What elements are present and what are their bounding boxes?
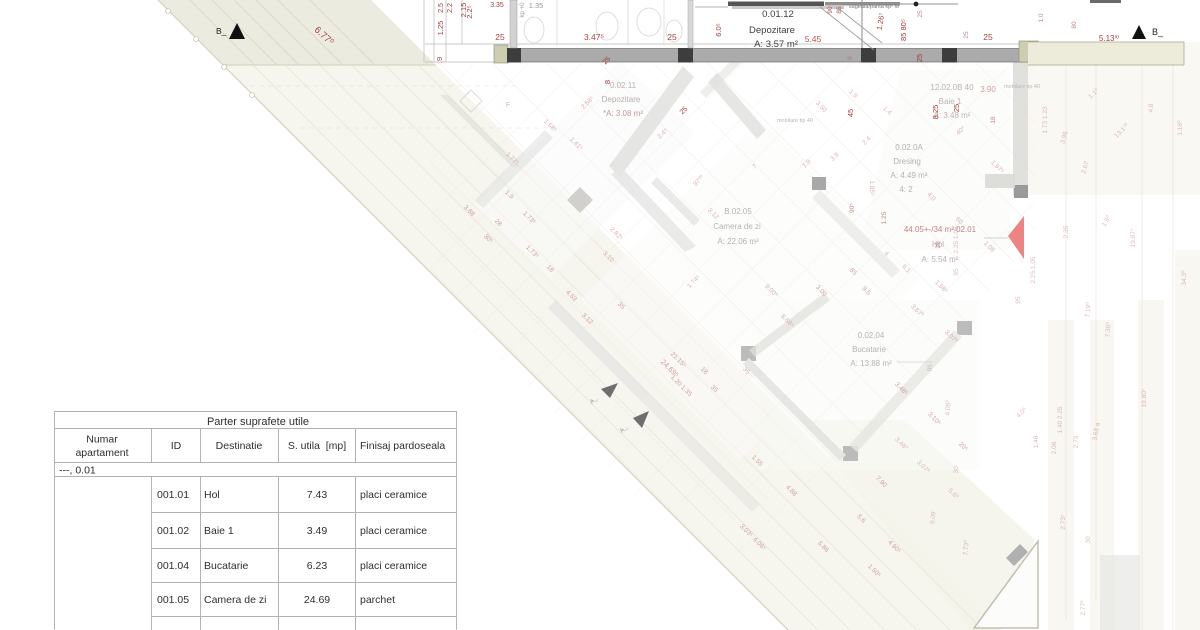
svg-text:1.48: 1.48 xyxy=(1033,435,1040,448)
svg-text:4: 4 xyxy=(882,250,890,258)
svg-text:2.25 1.05: 2.25 1.05 xyxy=(1030,256,1037,283)
svg-text:8.68⁵: 8.68⁵ xyxy=(779,313,795,329)
svg-text:2.4⁵: 2.4⁵ xyxy=(656,127,669,140)
svg-text:3.03⁵: 3.03⁵ xyxy=(738,523,754,539)
svg-text:1.0: 1.0 xyxy=(1038,13,1045,22)
svg-text:19.87⁷: 19.87⁷ xyxy=(1130,228,1137,247)
svg-text:1.1⁰: 1.1⁰ xyxy=(1087,86,1101,100)
svg-text:parchet: parchet xyxy=(360,594,395,606)
svg-text:25: 25 xyxy=(917,10,924,18)
svg-text:18: 18 xyxy=(545,264,555,274)
svg-text:001.01: 001.01 xyxy=(157,489,189,501)
svg-text:1.18⁰: 1.18⁰ xyxy=(1176,120,1184,136)
svg-text:30: 30 xyxy=(1085,536,1092,544)
svg-text:1.9: 1.9 xyxy=(801,158,813,170)
svg-text:9.09: 9.09 xyxy=(929,511,937,525)
svg-text:9.00⁵: 9.00⁵ xyxy=(763,283,779,299)
svg-text:5.86: 5.86 xyxy=(816,540,830,554)
svg-text:1.40 2.25: 1.40 2.25 xyxy=(1057,406,1064,433)
svg-text:7.73⁰: 7.73⁰ xyxy=(961,539,970,555)
svg-text:1.85⁵: 1.85⁵ xyxy=(868,180,875,196)
svg-text:2.4: 2.4 xyxy=(861,135,873,147)
svg-text:4.0: 4.0 xyxy=(925,191,937,203)
svg-text:18: 18 xyxy=(699,366,709,376)
svg-text:28: 28 xyxy=(493,218,503,228)
svg-text:4.8: 4.8 xyxy=(1148,103,1155,112)
svg-text:placi ceramice: placi ceramice xyxy=(360,560,427,572)
svg-text:1.9: 1.9 xyxy=(847,88,859,100)
svg-text:7.43: 7.43 xyxy=(307,489,328,501)
svg-text:80: 80 xyxy=(1071,21,1078,29)
svg-text:1.08: 1.08 xyxy=(982,240,996,254)
svg-text:4.90⁵: 4.90⁵ xyxy=(886,539,902,555)
svg-text:1.9⁰: 1.9⁰ xyxy=(1100,214,1113,228)
svg-text:Finisaj pardoseala: Finisaj pardoseala xyxy=(360,440,445,452)
svg-text:1.68⁵: 1.68⁵ xyxy=(542,118,558,134)
svg-text:Camera de zi: Camera de zi xyxy=(204,594,266,606)
svg-text:apartament: apartament xyxy=(75,447,128,459)
svg-text:5.6⁰: 5.6⁰ xyxy=(946,487,960,501)
svg-text:3.90: 3.90 xyxy=(980,85,996,94)
svg-text:Destinatie: Destinatie xyxy=(216,440,263,452)
svg-text:001.05: 001.05 xyxy=(157,594,189,606)
svg-text:2.77⁰: 2.77⁰ xyxy=(1079,600,1087,616)
svg-text:2.35: 2.35 xyxy=(1063,225,1070,238)
svg-text:Numar: Numar xyxy=(86,434,118,446)
svg-text:19.80⁷: 19.80⁷ xyxy=(1141,388,1148,407)
svg-text:5.6: 5.6 xyxy=(855,513,867,525)
svg-text:Hol: Hol xyxy=(204,489,220,501)
svg-text:7.19⁰: 7.19⁰ xyxy=(1083,301,1092,317)
svg-text:4.0⁵: 4.0⁵ xyxy=(1015,406,1028,419)
svg-text:1.41⁵: 1.41⁵ xyxy=(568,136,584,152)
svg-text:3.67⁰: 3.67⁰ xyxy=(909,302,926,319)
svg-text:2.73: 2.73 xyxy=(1073,435,1080,448)
svg-text:1.73⁵: 1.73⁵ xyxy=(521,210,537,226)
svg-text:95: 95 xyxy=(953,268,960,276)
svg-text:6.23: 6.23 xyxy=(307,560,328,572)
svg-text:35: 35 xyxy=(616,301,626,311)
svg-text:13.1⁷⁰: 13.1⁷⁰ xyxy=(1113,121,1131,139)
svg-text:2.73⁵: 2.73⁵ xyxy=(1060,514,1067,530)
svg-text:Parter suprafete utile: Parter suprafete utile xyxy=(207,416,309,428)
svg-text:3.07⁰: 3.07⁰ xyxy=(915,458,932,475)
svg-text:90⁵: 90⁵ xyxy=(849,203,856,213)
svg-text:2.58⁵: 2.58⁵ xyxy=(580,95,596,111)
svg-text:35: 35 xyxy=(709,384,719,394)
svg-text:25: 25 xyxy=(963,31,970,39)
svg-text:18: 18 xyxy=(990,116,997,124)
svg-text:3.00: 3.00 xyxy=(814,284,828,298)
svg-text:2.25 1.05: 2.25 1.05 xyxy=(953,226,960,253)
svg-text:1.55: 1.55 xyxy=(750,454,764,468)
svg-text:24.69: 24.69 xyxy=(304,594,330,606)
svg-text:2.67: 2.67 xyxy=(1081,160,1091,174)
svg-text:3.12: 3.12 xyxy=(706,207,720,221)
svg-text:4.06⁵: 4.06⁵ xyxy=(751,536,767,552)
svg-text:97⁰⁰: 97⁰⁰ xyxy=(691,173,706,188)
svg-text:25: 25 xyxy=(935,241,942,249)
svg-text:001.02: 001.02 xyxy=(157,525,189,537)
svg-text:95: 95 xyxy=(1015,296,1022,304)
svg-text:3.46⁰: 3.46⁰ xyxy=(893,435,910,452)
svg-text:ID: ID xyxy=(171,440,182,452)
svg-text:3.48⁵: 3.48⁵ xyxy=(893,381,909,397)
svg-text:4.53: 4.53 xyxy=(564,289,578,303)
svg-text:placi ceramice: placi ceramice xyxy=(360,525,427,537)
svg-text:30⁵: 30⁵ xyxy=(482,233,494,245)
svg-text:7: 7 xyxy=(751,163,759,171)
svg-text:1.20 1.35: 1.20 1.35 xyxy=(669,374,693,398)
svg-text:A_: A_ xyxy=(619,425,629,435)
svg-text:Bucatarie: Bucatarie xyxy=(204,560,249,572)
svg-text:30: 30 xyxy=(953,466,961,474)
svg-text:1.74⁵: 1.74⁵ xyxy=(686,274,702,290)
svg-text:1.73 1.23: 1.73 1.23 xyxy=(1042,106,1049,133)
svg-text:34.3⁰: 34.3⁰ xyxy=(1180,270,1188,286)
svg-text:3.68 a: 3.68 a xyxy=(1092,422,1102,441)
svg-text:20⁵: 20⁵ xyxy=(957,441,969,453)
svg-text:S. utila [mp]: S. utila [mp] xyxy=(288,440,346,452)
svg-text:2.06: 2.06 xyxy=(1051,441,1058,454)
svg-text:7.36⁰: 7.36⁰ xyxy=(1103,321,1112,337)
svg-text:6.1: 6.1 xyxy=(900,263,912,275)
svg-text:placi ceramice: placi ceramice xyxy=(360,489,427,501)
svg-text:60: 60 xyxy=(954,216,964,226)
svg-text:3.8: 3.8 xyxy=(829,151,841,163)
svg-text:1.25: 1.25 xyxy=(881,211,888,224)
svg-text:3.12: 3.12 xyxy=(580,312,594,326)
svg-text:Baie 1: Baie 1 xyxy=(204,525,234,537)
svg-text:001.04: 001.04 xyxy=(157,560,189,572)
svg-text:40⁵: 40⁵ xyxy=(955,125,967,137)
svg-text:95: 95 xyxy=(927,364,935,372)
svg-text:1.97⁵: 1.97⁵ xyxy=(989,159,1005,175)
svg-text:1.50⁵: 1.50⁵ xyxy=(866,563,882,579)
svg-text:2.82⁵: 2.82⁵ xyxy=(608,226,624,242)
svg-text:3.07⁰: 3.07⁰ xyxy=(943,328,960,345)
svg-text:1.98⁵: 1.98⁵ xyxy=(933,279,949,295)
svg-text:1.9: 1.9 xyxy=(503,189,515,201)
svg-text:3.10⁵: 3.10⁵ xyxy=(926,411,942,427)
svg-text:8: 8 xyxy=(847,56,854,60)
svg-text:3.10: 3.10 xyxy=(601,250,615,264)
svg-text:35: 35 xyxy=(741,366,751,376)
svg-text:4.88: 4.88 xyxy=(784,484,798,498)
svg-text:85: 85 xyxy=(848,267,858,277)
svg-text:3.95: 3.95 xyxy=(1060,130,1070,144)
svg-text:3.88: 3.88 xyxy=(462,204,476,218)
svg-text:3.50: 3.50 xyxy=(814,100,828,114)
svg-text:1.73⁵: 1.73⁵ xyxy=(524,244,540,260)
svg-text:4.05⁰: 4.05⁰ xyxy=(943,399,952,415)
svg-text:3.49: 3.49 xyxy=(307,525,328,537)
svg-text:---, 0.01: ---, 0.01 xyxy=(59,465,96,477)
svg-text:1.4: 1.4 xyxy=(881,105,893,117)
svg-text:9.5: 9.5 xyxy=(860,285,872,297)
svg-text:7.90: 7.90 xyxy=(874,475,888,489)
svg-text:1.77⁵: 1.77⁵ xyxy=(504,151,520,167)
